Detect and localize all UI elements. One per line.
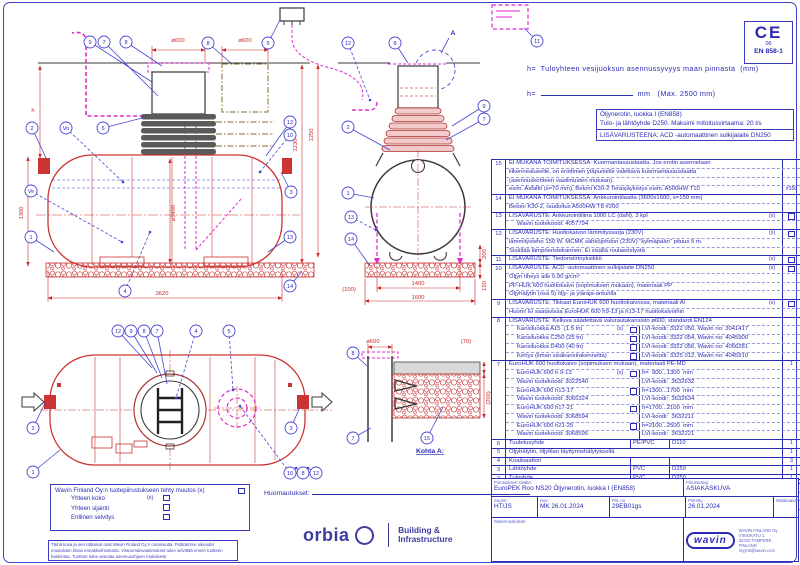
title-block: Piirustuksen sisältö: EuroPEK Roo NS20 Ö… bbox=[491, 478, 799, 562]
part-row: 13LISÄVARUSTE: Ankkurointiliina 1000 LC … bbox=[492, 212, 800, 230]
project-cell: Rakennuskohde: bbox=[492, 518, 684, 563]
quantity-cell: 3 bbox=[782, 458, 800, 466]
side-view bbox=[28, 32, 318, 302]
callout-1: 1 bbox=[342, 187, 374, 199]
quantity-cell bbox=[782, 326, 800, 334]
option-checkbox[interactable] bbox=[630, 423, 637, 430]
part-line: Öljyn tiheys alle 0,90 g/cm³ bbox=[506, 273, 800, 282]
change-item: Erillinen selvitys bbox=[55, 513, 245, 523]
option-checkbox[interactable] bbox=[630, 336, 637, 343]
callout-11: 11 bbox=[524, 28, 543, 47]
quantity-cell bbox=[782, 283, 800, 291]
callout-9: 9 bbox=[84, 36, 152, 82]
part-number: 14 bbox=[492, 195, 506, 212]
svg-text:13: 13 bbox=[287, 235, 293, 241]
top-view bbox=[22, 350, 332, 470]
dim-label: 1230 bbox=[293, 139, 299, 152]
inlet-stub bbox=[38, 158, 50, 174]
quantity-cell bbox=[782, 239, 800, 247]
quantity-cell bbox=[782, 221, 800, 229]
changes-title: Wavin Finland Oy:n tuotepiirustukseen te… bbox=[55, 487, 238, 494]
svg-text:3: 3 bbox=[289, 426, 292, 432]
part-line: LISÄVARUSTE: ACD -automaattinen sulkijal… bbox=[506, 265, 800, 273]
part-row: 11LISÄVARUSTE: Tiedonsiirtoyksikkö(x) bbox=[492, 255, 800, 264]
svg-text:13: 13 bbox=[348, 215, 354, 221]
part-line: Wavin tuotekoodi: 3065324LVI-koodi: 3632… bbox=[506, 395, 800, 404]
part-line: Wavin tuotekoodi: 3068595LVI-koodi: 3632… bbox=[506, 430, 800, 439]
drawing-number: 29EB01gs bbox=[612, 503, 683, 511]
svg-text:8: 8 bbox=[393, 41, 396, 47]
riser-2-optional bbox=[216, 64, 274, 146]
callout-6: 6 bbox=[97, 117, 146, 134]
product-info-box: Öljynerotin, luokka I (EN858) Tulo- ja l… bbox=[596, 109, 794, 141]
part-number: 12 bbox=[492, 230, 506, 255]
inlet-plan bbox=[44, 395, 56, 409]
logo-divider bbox=[388, 523, 390, 547]
part-line: EuroHUK 600 h13-17h=1300...1700 mm bbox=[506, 387, 800, 396]
quantity-cell bbox=[782, 388, 800, 396]
part-number: 11 bbox=[492, 256, 506, 264]
quantity-cell bbox=[782, 204, 800, 212]
dim-label: h bbox=[31, 108, 34, 114]
ce-mark: CE bbox=[745, 24, 792, 41]
svg-text:12: 12 bbox=[287, 120, 293, 126]
dim-label: 1250 bbox=[309, 129, 315, 142]
callout-3: 3 bbox=[281, 172, 297, 198]
quantity-cell bbox=[782, 370, 800, 378]
change-checkbox[interactable] bbox=[163, 514, 170, 521]
svg-text:8: 8 bbox=[124, 40, 127, 46]
quantity-cell bbox=[782, 256, 800, 264]
quantity-cell bbox=[782, 344, 800, 352]
change-item: Yhteen koko (x) bbox=[55, 494, 245, 504]
svg-text:7: 7 bbox=[155, 329, 158, 335]
svg-text:2: 2 bbox=[31, 426, 34, 432]
option-checkbox[interactable] bbox=[630, 371, 637, 378]
svg-text:4: 4 bbox=[123, 289, 126, 295]
part-line: esim. Asfaltti (s=70 mm), Betoni K30-2 T… bbox=[506, 185, 800, 194]
gravel-bed bbox=[46, 263, 314, 277]
svg-text:8: 8 bbox=[142, 329, 145, 335]
quantity-cell: 1 bbox=[782, 449, 800, 457]
quantity-cell bbox=[782, 178, 800, 186]
part-line: Kansiluokka D400 (40 tn)LVI-koodi: 3322 … bbox=[506, 343, 800, 352]
svg-text:5: 5 bbox=[266, 41, 269, 47]
svg-text:7: 7 bbox=[351, 436, 354, 442]
quantity-cell: 1 bbox=[782, 361, 800, 369]
part-line: Wavin tuotekoodi: 3022540LVI-koodi: 3632… bbox=[506, 378, 800, 387]
dim-label: (70) bbox=[461, 339, 471, 345]
dim-label: 1400 bbox=[412, 281, 425, 287]
approved-by: MK 26.01.2024 bbox=[540, 503, 607, 511]
option-checkbox[interactable] bbox=[630, 344, 637, 351]
part-row: 9LISÄVARUSTE: Tikkaat EuroHUK 600 huolto… bbox=[492, 299, 800, 317]
product-class: Öljynerotin, luokka I (EN858) bbox=[600, 111, 790, 120]
part-line: LISÄVARUSTE: Tiedonsiirtoyksikkö(x) bbox=[506, 256, 800, 264]
svg-text:10: 10 bbox=[287, 133, 293, 139]
part-line: LähtöyhdePVCD2501 bbox=[506, 466, 800, 474]
quantity-cell bbox=[782, 300, 800, 308]
svg-text:12: 12 bbox=[115, 329, 121, 335]
load-slab bbox=[394, 362, 480, 374]
riser-shaft bbox=[152, 72, 205, 114]
quantity-cell: 1 bbox=[782, 440, 800, 448]
svg-text:1: 1 bbox=[29, 235, 32, 241]
dim-label: ⌀1400 bbox=[171, 205, 177, 221]
callout-1: 1 bbox=[27, 450, 60, 478]
part-row: 8LISÄVARUSTE: Kelluva säädettävä valurau… bbox=[492, 317, 800, 361]
svg-text:12: 12 bbox=[313, 471, 319, 477]
part-line: Kehys (ilman sisäkansirakennetta)LVI-koo… bbox=[506, 352, 800, 361]
riser-corrugation bbox=[141, 114, 216, 155]
drawn-date: 26.01.2024 bbox=[688, 503, 771, 511]
flow-arrow-out bbox=[312, 393, 332, 411]
quantity-cell bbox=[782, 169, 800, 177]
part-line: LISÄVARUSTE: Kelluva säädettävä valuraut… bbox=[506, 318, 800, 326]
dim-label: ⌀600 bbox=[366, 339, 379, 345]
quantity-cell bbox=[782, 195, 800, 203]
orbia-logo: orbia Building & Infrastructure bbox=[303, 523, 453, 547]
quantity-cell bbox=[782, 405, 800, 413]
option-checkbox[interactable] bbox=[788, 266, 795, 273]
part-number: 9 bbox=[492, 300, 506, 317]
svg-text:11: 11 bbox=[534, 39, 540, 45]
flow-arrow-in bbox=[22, 393, 44, 411]
option-checkbox[interactable] bbox=[788, 257, 795, 264]
svg-text:1: 1 bbox=[346, 191, 349, 197]
part-line: LISÄVARUSTE: Ankkurointiliina 1000 LC (d… bbox=[506, 213, 800, 221]
svg-text:Vo: Vo bbox=[63, 126, 70, 132]
svg-text:7: 7 bbox=[482, 117, 485, 123]
wavin-logo: wavin bbox=[686, 532, 735, 549]
part-number: 3 bbox=[492, 466, 506, 474]
drawing-type: ASIAKASKUVA bbox=[686, 485, 796, 493]
option-checkbox[interactable] bbox=[788, 231, 795, 238]
svg-text:2: 2 bbox=[346, 125, 349, 131]
drawing-sheet: { "ce": {"mark": "CE", "number": "06", "… bbox=[0, 0, 800, 565]
parts-table: 15EI MUKANA TOIMITUKSESSA: Kuormantasaus… bbox=[491, 159, 800, 480]
callout-8: 8 bbox=[389, 37, 408, 63]
callout-2: 2 bbox=[26, 122, 46, 158]
quantity-cell bbox=[782, 309, 800, 317]
quantity-cell bbox=[782, 248, 800, 256]
changes-checkbox[interactable] bbox=[238, 488, 245, 495]
product-flow: Tulo- ja lähtöyhde D250. Maksimi mitoitu… bbox=[600, 120, 790, 129]
part-number: 5 bbox=[492, 449, 506, 457]
quantity-cell bbox=[782, 423, 800, 431]
svg-text:9: 9 bbox=[129, 329, 132, 335]
part-line: Koalisaattori3 bbox=[506, 458, 800, 466]
part-number: 8 bbox=[492, 318, 506, 361]
part-line: Öljyhälytin (osa 5) öljy- ja yläraja-ant… bbox=[506, 290, 800, 299]
dim-label: (100) bbox=[342, 287, 356, 293]
remarks-blank[interactable] bbox=[312, 487, 530, 495]
dim-label: Kohta A: bbox=[416, 448, 444, 455]
ce-standard: EN 858-1 bbox=[745, 47, 792, 56]
part-row: 10LISÄVARUSTE: ACD -automaattinen sulkij… bbox=[492, 264, 800, 299]
part-line: LISÄVARUSTE: Huoltokaivon lämmityssarja … bbox=[506, 230, 800, 238]
part-number: 13 bbox=[492, 213, 506, 230]
callout-7: 7 bbox=[446, 113, 490, 140]
end-riser-corrugation bbox=[382, 108, 454, 152]
part-row: 4Koalisaattori3 bbox=[492, 457, 800, 466]
ce-marking: CE 06 EN 858-1 bbox=[744, 21, 793, 64]
part-row: 15EI MUKANA TOIMITUKSESSA: Kuormantasaus… bbox=[492, 160, 800, 194]
svg-text:1: 1 bbox=[31, 470, 34, 476]
company-cell: wavin WAVIN FINLAND Oy VISIOKATU 1 33720… bbox=[684, 518, 798, 563]
part-line: LISÄVARUSTE: Tikkaat EuroHUK 600 huoltok… bbox=[506, 300, 800, 308]
outlet-stub bbox=[282, 158, 292, 174]
outlet-plan bbox=[297, 395, 309, 409]
quantity-cell bbox=[782, 414, 800, 422]
quantity-cell bbox=[782, 353, 800, 361]
dim-label: 150 bbox=[482, 281, 488, 291]
option-checkbox[interactable] bbox=[630, 353, 637, 360]
remarks-line: Huomautukset: bbox=[264, 487, 530, 497]
svg-text:14: 14 bbox=[287, 284, 293, 290]
part-line: Betoni K30-2, raudoitus A500HW T8 #200 bbox=[506, 203, 800, 212]
option-checkbox[interactable] bbox=[788, 301, 795, 308]
h-definition: h= Tuloyhteen vesijuoksun asennussyvyys … bbox=[527, 64, 759, 73]
dim-label: ⌀600 bbox=[238, 38, 251, 44]
svg-text:5: 5 bbox=[227, 329, 230, 335]
part-number: 15 bbox=[492, 160, 506, 194]
backfill-gravel bbox=[392, 374, 480, 418]
callout-12: 12 bbox=[342, 37, 371, 101]
h-fill-line: h= mm (Max. 2500 mm) bbox=[527, 88, 715, 98]
svg-text:8: 8 bbox=[301, 471, 304, 477]
callout-8: 8 bbox=[120, 36, 162, 66]
svg-text:4: 4 bbox=[194, 329, 197, 335]
part-number: 4 bbox=[492, 458, 506, 466]
quantity-cell bbox=[782, 213, 800, 221]
part-line: EuroHUK 600 h 9-13(x)h= 900...1300 mm bbox=[506, 369, 800, 378]
part-line: Wavin tuotekoodi: 3068594LVI-koodi: 3632… bbox=[506, 413, 800, 422]
part-line: EI MUKANA TOIMITUKSESSA: Ankkurointilaat… bbox=[506, 195, 800, 203]
option-checkbox[interactable] bbox=[630, 388, 637, 395]
quantity-cell: #150 bbox=[782, 186, 800, 194]
quantity-cell: 1 bbox=[782, 466, 800, 474]
quantity-cell bbox=[782, 431, 800, 439]
part-row: 3LähtöyhdePVCD2501 bbox=[492, 465, 800, 474]
dim-label: 1300 bbox=[19, 207, 25, 220]
callout-8: 8 bbox=[202, 37, 232, 64]
part-line: EuroHUK 600 huoltokaivo (sopimuksen muka… bbox=[506, 361, 800, 369]
changes-box: Wavin Finland Oy:n tuotepiirustukseen te… bbox=[50, 484, 250, 531]
callout-2: 2 bbox=[342, 121, 390, 150]
svg-text:15: 15 bbox=[424, 436, 430, 442]
quantity-cell bbox=[782, 318, 800, 326]
quantity-cell bbox=[782, 396, 800, 404]
part-line: liikennealueelle, on erottimen yläpuolel… bbox=[506, 168, 800, 177]
part-line: PP-HUK 600 huoltokaivo (sopimuksen mukaa… bbox=[506, 282, 800, 291]
svg-text:14: 14 bbox=[348, 237, 354, 243]
disclaimer-box: Tämä kuva ja sen ratkaisut ovat Wavin Fi… bbox=[48, 540, 238, 561]
part-row: 12LISÄVARUSTE: Huoltokaivon lämmityssarj… bbox=[492, 229, 800, 255]
drawing-type-cell: Piirustuslaji: ASIAKASKUVA bbox=[684, 479, 798, 496]
quantity-cell bbox=[782, 379, 800, 387]
dim-label: ⌀600 bbox=[171, 38, 184, 44]
svg-text:Ve: Ve bbox=[28, 189, 35, 195]
part-line: EuroHUK 600 h21-25h=2100...2500 mm bbox=[506, 422, 800, 431]
vent-pipe bbox=[72, 32, 150, 116]
part-line: Huom! Ei saatavissa EuroHUK 600 h9-13 ja… bbox=[506, 308, 800, 317]
quantity-cell bbox=[782, 335, 800, 343]
option-checkbox[interactable] bbox=[630, 327, 637, 334]
change-checkbox[interactable] bbox=[163, 495, 170, 502]
orbia-ring-icon bbox=[353, 524, 376, 547]
svg-text:2: 2 bbox=[30, 126, 33, 132]
dim-label: 1600 bbox=[412, 295, 425, 301]
part-number: 6 bbox=[492, 440, 506, 448]
svg-text:12: 12 bbox=[345, 41, 351, 47]
svg-text:10: 10 bbox=[287, 471, 293, 477]
part-line: EuroHUK 600 h17-21h=1700...2100 mm bbox=[506, 404, 800, 413]
part-row: 7EuroHUK 600 huoltokaivo (sopimuksen muk… bbox=[492, 360, 800, 439]
part-line: Öljyhälytin, öljytilan täyttymishälytyks… bbox=[506, 449, 800, 457]
quantity-cell bbox=[782, 160, 800, 168]
dim-label: A bbox=[451, 30, 456, 37]
part-line: lämmitysteho 150 W. MCMK sähköjohdon (23… bbox=[506, 238, 800, 247]
svg-text:7: 7 bbox=[102, 40, 105, 46]
dim-label: 3620 bbox=[156, 291, 169, 297]
svg-text:6: 6 bbox=[101, 126, 104, 132]
tank-body bbox=[48, 155, 282, 267]
change-checkbox[interactable] bbox=[163, 504, 170, 511]
part-row: 5Öljyhälytin, öljytilan täyttymishälytyk… bbox=[492, 448, 800, 457]
change-item: Yhteen sijainti bbox=[55, 504, 245, 514]
callout-14: 14 bbox=[345, 233, 370, 266]
part-number: 7 bbox=[492, 361, 506, 439]
part-row: 6TuuletusyhdePE/PVCD1101 bbox=[492, 439, 800, 448]
part-line: Sisältää lämpöeristekannen. Ei sisällä r… bbox=[506, 247, 800, 256]
part-number: 10 bbox=[492, 265, 506, 299]
part-line: EI MUKANA TOIMITUKSESSA: Kuormantasausla… bbox=[506, 160, 800, 168]
part-row: 14EI MUKANA TOIMITUKSESSA: Ankkurointila… bbox=[492, 194, 800, 212]
option-checkbox[interactable] bbox=[788, 213, 795, 220]
detail-kohta-a bbox=[362, 344, 484, 442]
end-view bbox=[280, 8, 480, 305]
quantity-cell bbox=[782, 265, 800, 273]
oil-alarm-unit bbox=[280, 8, 363, 100]
h-value-blank[interactable] bbox=[541, 88, 633, 96]
quantity-cell bbox=[782, 274, 800, 282]
callout-8: 8 bbox=[347, 347, 367, 366]
svg-text:8: 8 bbox=[351, 351, 354, 357]
part-line: Wavin tuotekoodi: 4057794 bbox=[506, 220, 800, 229]
part-line: (asennuskohteen vaatimusten mukaan). bbox=[506, 177, 800, 186]
callout-5: 5 bbox=[262, 20, 280, 49]
data-transfer-unit-optional bbox=[492, 5, 528, 29]
svg-text:8: 8 bbox=[206, 41, 209, 47]
wavin-address: WAVIN FINLAND Oy VISIOKATU 1 33720 TAMPE… bbox=[739, 528, 778, 553]
svg-text:3: 3 bbox=[289, 190, 292, 196]
part-line: Kansiluokka A15 (1.5 tn)(x)LVI-koodi: 33… bbox=[506, 325, 800, 334]
part-line: TuuletusyhdePE/PVCD1101 bbox=[506, 440, 800, 448]
quantity-cell bbox=[782, 230, 800, 238]
option-checkbox[interactable] bbox=[630, 406, 637, 413]
gravel-bed-end bbox=[365, 263, 475, 277]
designer: HT/JS bbox=[494, 503, 535, 511]
svg-text:9: 9 bbox=[482, 104, 485, 110]
product-accessory: LISÄVARUSTEENA: ACD -automaattinen sulki… bbox=[596, 130, 794, 141]
svg-text:9: 9 bbox=[88, 40, 91, 46]
dim-label: 200 bbox=[482, 249, 488, 259]
quantity-cell bbox=[782, 291, 800, 299]
part-line: Kansiluokka C250 (25 tn)LVI-koodi: 3322 … bbox=[506, 334, 800, 343]
